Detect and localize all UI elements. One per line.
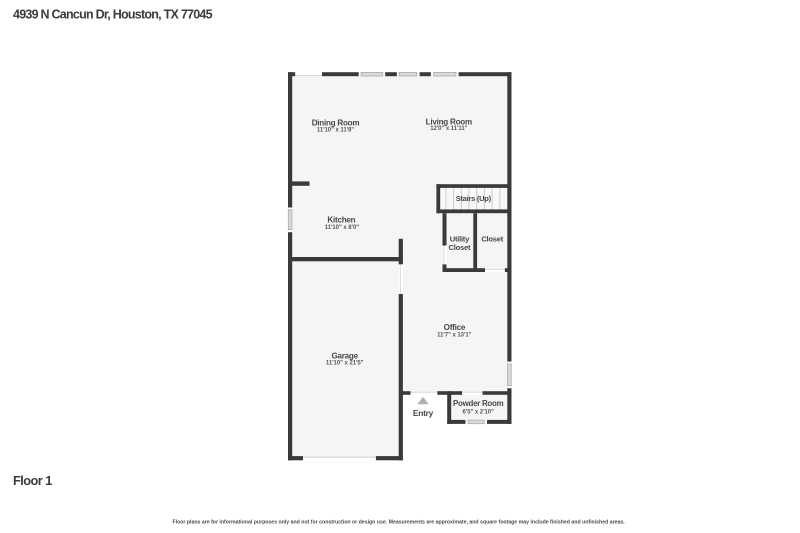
svg-text:12'0" x 11'11": 12'0" x 11'11" [430, 126, 467, 132]
svg-text:Closet: Closet [449, 243, 471, 252]
svg-text:Floor plans are for informatio: Floor plans are for informational purpos… [172, 519, 625, 525]
svg-text:Entry: Entry [413, 408, 434, 418]
svg-text:4939 N Cancun Dr, Houston, TX: 4939 N Cancun Dr, Houston, TX 77045 [13, 8, 213, 22]
svg-text:Closet: Closet [481, 235, 503, 244]
svg-text:11'10" x 8'0": 11'10" x 8'0" [325, 225, 359, 231]
svg-text:11'7" x 13'1": 11'7" x 13'1" [437, 332, 471, 338]
svg-text:Dining Room: Dining Room [312, 118, 360, 127]
svg-text:Office: Office [444, 323, 466, 332]
svg-text:Powder Room: Powder Room [453, 399, 504, 408]
svg-text:Stairs (Up): Stairs (Up) [456, 194, 492, 203]
svg-text:Kitchen: Kitchen [327, 215, 355, 224]
svg-text:Floor 1: Floor 1 [13, 473, 52, 488]
svg-text:11'10" x 11'8": 11'10" x 11'8" [317, 128, 354, 134]
svg-text:Garage: Garage [331, 352, 358, 361]
svg-text:11'10" x 21'5": 11'10" x 21'5" [326, 361, 364, 367]
svg-text:6'5" x 2'10": 6'5" x 2'10" [463, 409, 495, 415]
